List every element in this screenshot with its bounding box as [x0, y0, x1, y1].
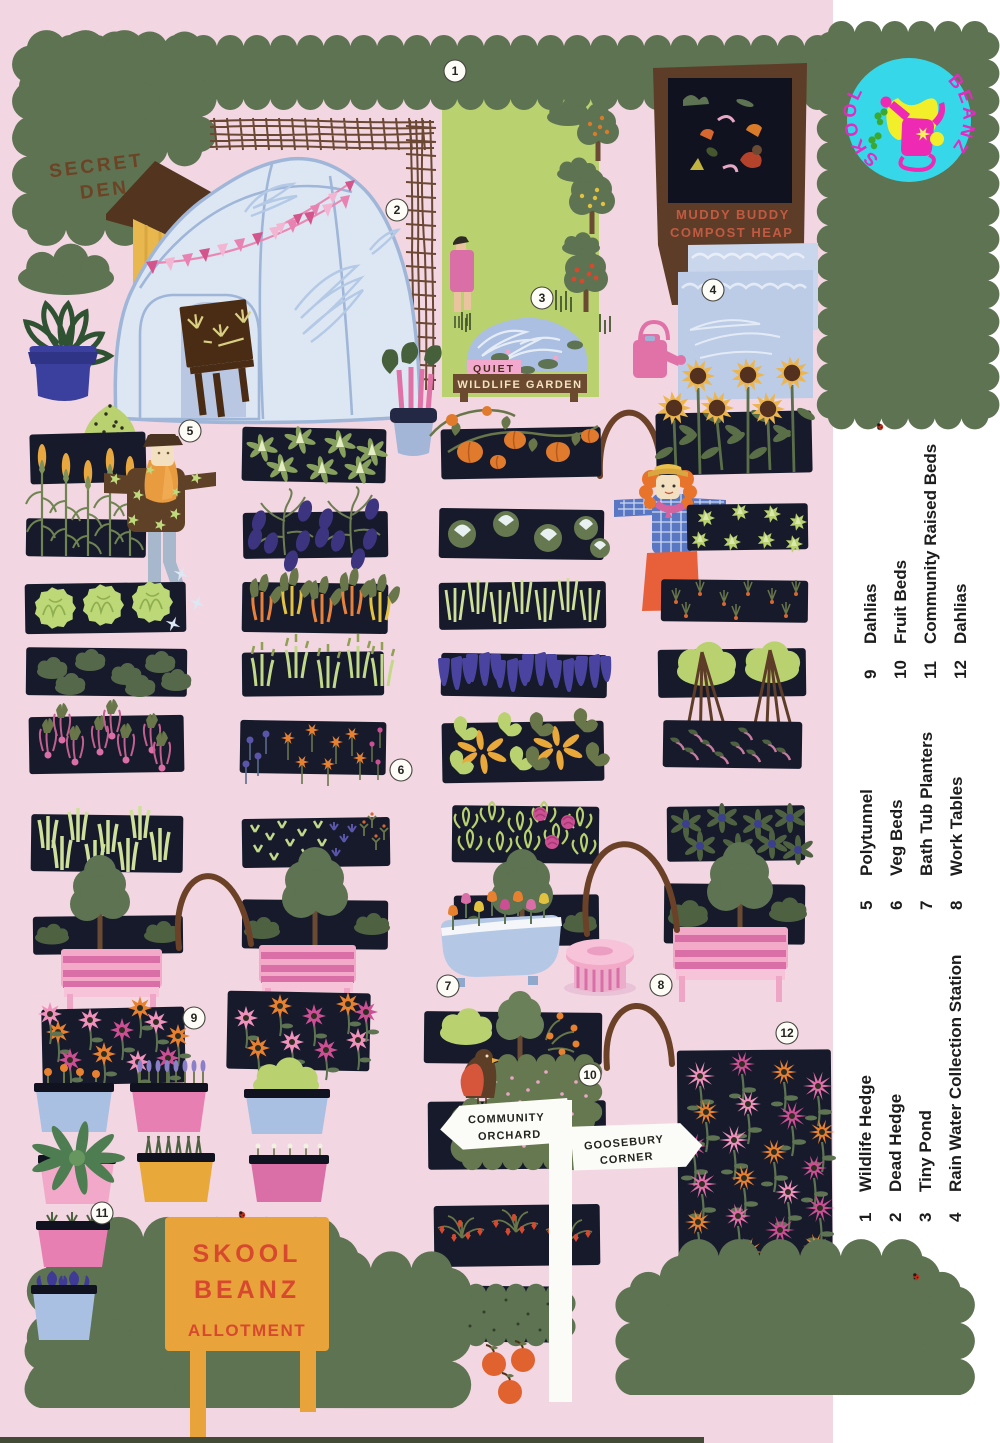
svg-text:2: 2 [394, 203, 401, 217]
svg-text:6: 6 [398, 763, 405, 777]
svg-text:10: 10 [583, 1068, 597, 1082]
svg-text:1: 1 [856, 1213, 875, 1222]
svg-text:3: 3 [916, 1213, 935, 1222]
svg-text:ORCHARD: ORCHARD [478, 1129, 542, 1143]
svg-text:Community Raised Beds: Community Raised Beds [921, 444, 940, 644]
svg-text:11: 11 [96, 1206, 109, 1220]
svg-text:Dead Hedge: Dead Hedge [886, 1094, 905, 1192]
svg-text:5: 5 [187, 424, 194, 438]
svg-text:WILDLIFE GARDEN: WILDLIFE GARDEN [457, 379, 582, 391]
svg-text:Tiny Pond: Tiny Pond [916, 1110, 935, 1192]
svg-text:Fruit Beds: Fruit Beds [891, 560, 910, 644]
svg-text:Bath Tub Planters: Bath Tub Planters [917, 732, 936, 876]
svg-text:Veg Beds: Veg Beds [887, 799, 906, 876]
svg-text:MUDDY BUDDY: MUDDY BUDDY [676, 207, 790, 222]
svg-text:9: 9 [191, 1011, 198, 1025]
svg-text:Wildlife Hedge: Wildlife Hedge [856, 1075, 875, 1192]
svg-text:8: 8 [947, 901, 966, 910]
svg-text:QUIET: QUIET [473, 363, 515, 375]
svg-text:2: 2 [886, 1213, 905, 1222]
svg-text:9: 9 [861, 670, 880, 679]
svg-text:COMPOST HEAP: COMPOST HEAP [670, 225, 793, 240]
svg-text:Polytunnel: Polytunnel [857, 789, 876, 876]
svg-text:1: 1 [452, 64, 459, 78]
svg-text:11: 11 [921, 661, 940, 679]
svg-text:BEANZ: BEANZ [194, 1276, 300, 1304]
svg-text:ALLOTMENT: ALLOTMENT [188, 1321, 306, 1340]
svg-text:5: 5 [857, 901, 876, 910]
svg-text:Rain Water Collection Station: Rain Water Collection Station [946, 955, 965, 1192]
svg-text:Dahlias: Dahlias [951, 584, 970, 644]
svg-text:12: 12 [951, 660, 970, 679]
svg-text:7: 7 [917, 901, 936, 910]
svg-text:7: 7 [445, 979, 452, 993]
svg-text:Work Tables: Work Tables [947, 776, 966, 876]
svg-text:12: 12 [780, 1026, 794, 1040]
svg-text:4: 4 [946, 1212, 965, 1222]
svg-text:8: 8 [658, 978, 665, 992]
svg-text:4: 4 [710, 283, 717, 297]
svg-text:10: 10 [891, 660, 910, 679]
svg-text:SKOOL: SKOOL [193, 1240, 302, 1268]
svg-text:3: 3 [539, 291, 546, 305]
svg-text:6: 6 [887, 901, 906, 910]
svg-text:Dahlias: Dahlias [861, 584, 880, 644]
